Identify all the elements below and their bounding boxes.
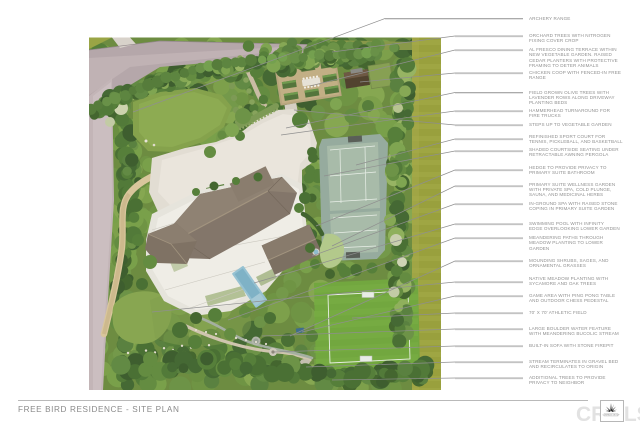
svg-text:COMPASS GROUP: COMPASS GROUP	[603, 414, 621, 417]
